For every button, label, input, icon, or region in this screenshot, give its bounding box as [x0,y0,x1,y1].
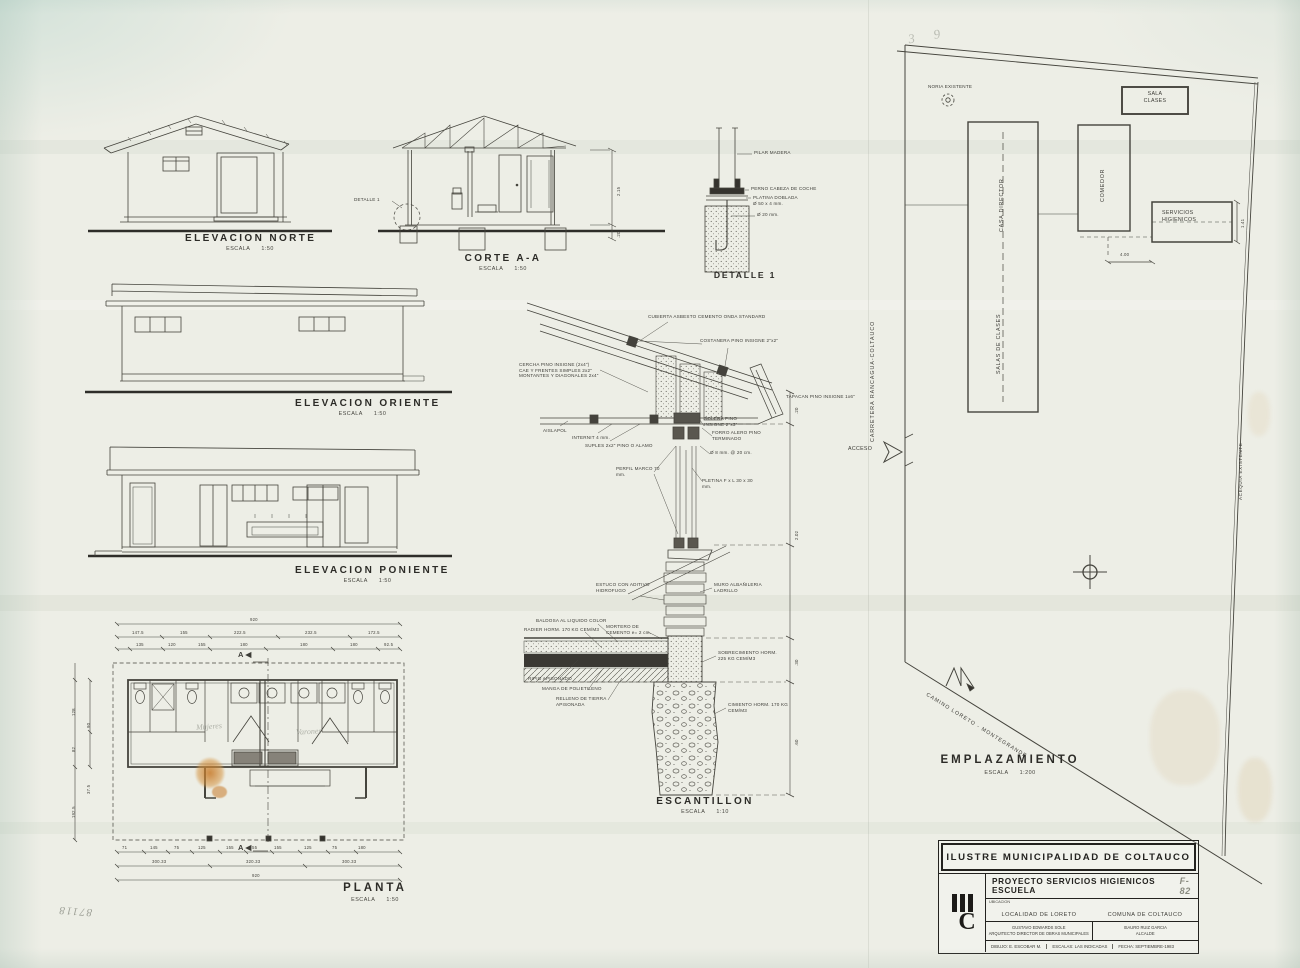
esc-label-costanera: COSTANERA PINO INSIGNE 2"x2" [700,338,778,344]
mayor-title: ALCALDE [1136,931,1155,937]
scale-value: 1:50 [374,411,387,417]
corte-aa-drawing [378,116,665,250]
escantillon-title: ESCANTILLON [640,796,770,807]
planta-scale: ESCALA1:50 [320,897,430,903]
escala-label: ESCALA [984,770,1008,776]
section-letter: A [238,843,243,852]
signatures-row: GUSTAVO EDWARDS SOLE ARQUITECTO DIRECTOR… [986,921,1198,940]
escala-label: ESCALA [344,578,368,584]
dim-label: .20 [616,231,621,238]
municipality-name: ILUSTRE MUNICIPALIDAD DE COLTAUCO [941,843,1196,871]
dim-label: 232.5 [305,630,317,635]
project-title-row: PROYECTO SERVICIOS HIGIENICOS ESCUELA F-… [986,874,1198,898]
esc-label-internit: INTERNIT 4 mm. [572,435,610,441]
dim-label: 71 [122,845,127,850]
dim-label: 120 [168,642,176,647]
drawing-linework [0,0,1300,968]
section-marker-top: A ◀ [238,650,251,659]
esc-label-estuco: ESTUCO CON ADITIVO HIDROFUGO [596,582,660,593]
room-label-left: Mujeres [196,721,222,732]
dim-label: 300.33 [152,859,166,864]
dim-label: 180 [350,642,358,647]
municipality-logo: C [939,874,986,952]
elevacion-poniente-drawing [88,447,452,556]
architect-title: ARQUITECTO DIRECTOR DE OBRAS MUNICIPALES [989,931,1089,937]
emp-label-servicios: SERVICIOS HIGIENICOS [1162,210,1228,225]
dim-label: 82 [71,747,76,752]
section-marker-bottom: A ◀ [238,843,251,852]
esc-label-mortero: MORTERO DE CEMENTO e= 2 cm. [606,624,662,635]
north-arrow-icon [946,668,974,691]
dim-label: 180 [358,845,366,850]
localidad: LOCALIDAD DE LORETO [986,912,1092,918]
dim-label: .60 [794,739,799,746]
escala-label: ESCALA [479,266,503,272]
location-row: UBICACION LOCALIDAD DE LORETO COMUNA DE … [986,898,1198,921]
esc-label-muro: MURO ALBAÑILERIA LADRILLO [714,582,772,593]
escantillon-scale: ESCALA1:10 [640,809,770,815]
dim-label: 222.5 [234,630,246,635]
escala-label: ESCALA [351,897,375,903]
dim-label: 180 [300,642,308,647]
logo-letter: C [958,912,975,932]
dim-label: 135 [136,642,144,647]
dim-label: 155 [198,642,206,647]
emplazamiento-title: EMPLAZAMIENTO [930,754,1090,766]
elevacion-poniente-scale: ESCALA1:50 [295,578,440,584]
esc-label-tapacan: TAPACAN PINO INSIGNE 1x6" [786,394,855,400]
emp-label-salas-clases: SALAS DE CLASES [996,314,1003,374]
esc-label-cercha-3: MONTANTES Y DIAGONALES 2x4" [519,373,605,379]
esc-label-manga: MANGA DE POLIETILENO [542,686,602,692]
blueprint-sheet: ELEVACION NORTE ESCALA1:50 CORTE A-A ESC… [0,0,1300,968]
esc-label-suples: SUPLES 2x2" PINO O ALAMO [585,443,653,449]
emp-label-carretera: CARRETERA RANCAGUA-COLTAUCO [870,321,877,442]
emp-label-sala-clases: SALA CLASES [1124,91,1186,105]
escala-label: ESCALA [339,411,363,417]
dim-label: 55 [252,845,257,850]
emp-label-sala: SALA [1124,91,1186,98]
scale-value: 1:50 [379,578,392,584]
dim-label: 125 [198,845,206,850]
dim-label: 172.5 [368,630,380,635]
dim-label: 180 [240,642,248,647]
scale-value: 1:50 [261,246,274,252]
dim-label: 147.5 [132,630,144,635]
title-block: ILUSTRE MUNICIPALIDAD DE COLTAUCO C PROY… [938,840,1199,954]
dim-label: 2.02 [794,531,799,540]
detalle-label-perno: PERNO CABEZA DE COCHE [751,186,816,192]
elevacion-norte-title: ELEVACION NORTE [185,233,315,244]
detalle-1-title: DETALLE 1 [690,270,800,280]
elevacion-oriente-drawing [85,284,452,392]
emp-label-acceso: ACCESO [848,446,872,453]
emp-label-acequia: ACEQUIA EXISTENTE [1238,443,1244,500]
dim-label: 2.15 [616,187,621,196]
fecha-info: FECHA: SEPTIEMBRE-1983 [1112,944,1179,949]
dim-label: 75 [174,845,179,850]
elevacion-poniente-title: ELEVACION PONIENTE [295,565,440,576]
survey-crosshair-icon [1073,555,1107,589]
scale-value: 1:10 [716,809,729,815]
dim-label: 920 [250,617,258,622]
escalas-info: ESCALAS: LAS INDICADAS [1046,944,1112,949]
corte-aa-scale: ESCALA1:50 [438,266,568,272]
esc-label-sobrecimiento: SOBRECIMIENTO HORM. 225 KG CEM/M3 [718,650,786,661]
dibujo-info: DIBUJO: E. ESCOBAR M. [986,944,1046,949]
dim-label: 125 [304,845,312,850]
esc-label-pletina: PLETINA F x L 30 x 30 mm. [702,478,758,489]
dim-label: 320.33 [246,859,260,864]
dim-label: 192.5 [71,806,76,818]
comuna: COMUNA DE COLTAUCO [1092,912,1198,918]
esc-label-cimiento: CIMIENTO HORM. 170 KG CEM/M3 [728,702,790,713]
ubicacion-label: UBICACION [989,900,1010,904]
dim-label: 37.5 [86,785,91,794]
dim-label: 1.41 [1240,219,1245,228]
emp-label-servicios-1: SERVICIOS [1162,210,1228,217]
esc-label-aislapol: AISLAPOL [543,428,567,434]
esc-label-perfil-marco: PERFIL MARCO 70 mm. [616,466,668,477]
scale-value: 1:50 [514,266,527,272]
emp-label-servicios-2: HIGIENICOS [1162,217,1228,224]
corte-aa-title: CORTE A-A [438,253,568,264]
dim-label: 75 [332,845,337,850]
esc-label-cubierta: CUBIERTA ASBESTO CEMENTO ONDA STANDARD [648,314,765,320]
detalle-label-diam: Ø 20 mm. [757,212,779,218]
detalle-label-platina-size: Ø 50 x 4 mm. [753,201,783,207]
room-label-right: Varones [296,726,322,736]
dim-label: 4.00 [1120,252,1129,257]
esc-label-ripio: RIPIO APISONADO [528,676,572,682]
elevacion-norte-drawing [88,116,332,231]
esc-label-baldosa: BALDOSA AL LIQUIDO COLOR [536,618,607,624]
detalle-label-platina: PLATINA DOBLADA [753,195,798,201]
dim-label: 155 [274,845,282,850]
dim-label: 145 [150,845,158,850]
detalle-label-pilar: PILAR MADERA [754,150,791,156]
escala-label: ESCALA [681,809,705,815]
dim-label: 90 [86,723,91,728]
emp-label-comedor: COMEDOR [1100,169,1107,202]
esc-label-relleno: RELLENO DE TIERRA APISONADA [556,696,620,707]
emplazamiento-scale: ESCALA1:200 [930,770,1090,776]
dim-label: .30 [794,659,799,666]
architect-cell: GUSTAVO EDWARDS SOLE ARQUITECTO DIRECTOR… [986,922,1093,940]
esc-label-cercha: CERCHA PINO INSIGNE (2x4") CAE Y FRENTES… [519,362,605,379]
sheet-number: F-82 [1180,876,1198,896]
section-letter: A [238,650,243,659]
dim-label: 128 [71,708,76,716]
esc-label-radier: RADIER HORM. 170 KG CEM/M3 [524,627,599,633]
elevacion-norte-scale: ESCALA1:50 [185,246,315,252]
elevacion-oriente-title: ELEVACION ORIENTE [295,398,430,409]
dim-label: 920 [252,873,260,878]
dim-label: .20 [794,407,799,414]
escala-label: ESCALA [226,246,250,252]
detalle-1-drawing [705,128,755,272]
emp-label-noria: NORIA EXISTENTE [928,84,972,90]
dim-label: 155 [180,630,188,635]
dim-label: 300.33 [342,859,356,864]
esc-label-fierro: Ø 8 mm. @ 20 cm. [710,450,754,456]
scale-value: 1:50 [386,897,399,903]
esc-label-forro: FORRO ALERO PINO TERMINADO [712,430,766,441]
emp-label-clases: CLASES [1124,98,1186,105]
project-title: PROYECTO SERVICIOS HIGIENICOS ESCUELA [992,877,1174,895]
dim-label: 155 [226,845,234,850]
pencil-number-corner: 87118 [58,904,93,918]
mayor-cell: ISAURO RUIZ GARCIA ALCALDE [1093,922,1199,940]
emp-label-casa-director: CASA DIRECTOR [999,178,1006,232]
planta-title: PLANTA [320,882,430,894]
elevacion-oriente-scale: ESCALA1:50 [295,411,430,417]
esc-label-solera: SOLERA PINO INSIGNE 2"x3" [704,416,752,427]
acceso-arrow-icon [884,434,913,466]
drawing-info-row: DIBUJO: E. ESCOBAR M. ESCALAS: LAS INDIC… [986,940,1198,952]
noria-symbol [942,94,954,106]
scale-value: 1:200 [1020,770,1036,776]
detalle-1-callout: DETALLE 1 [354,197,380,203]
dim-label: 92.5 [384,642,393,647]
